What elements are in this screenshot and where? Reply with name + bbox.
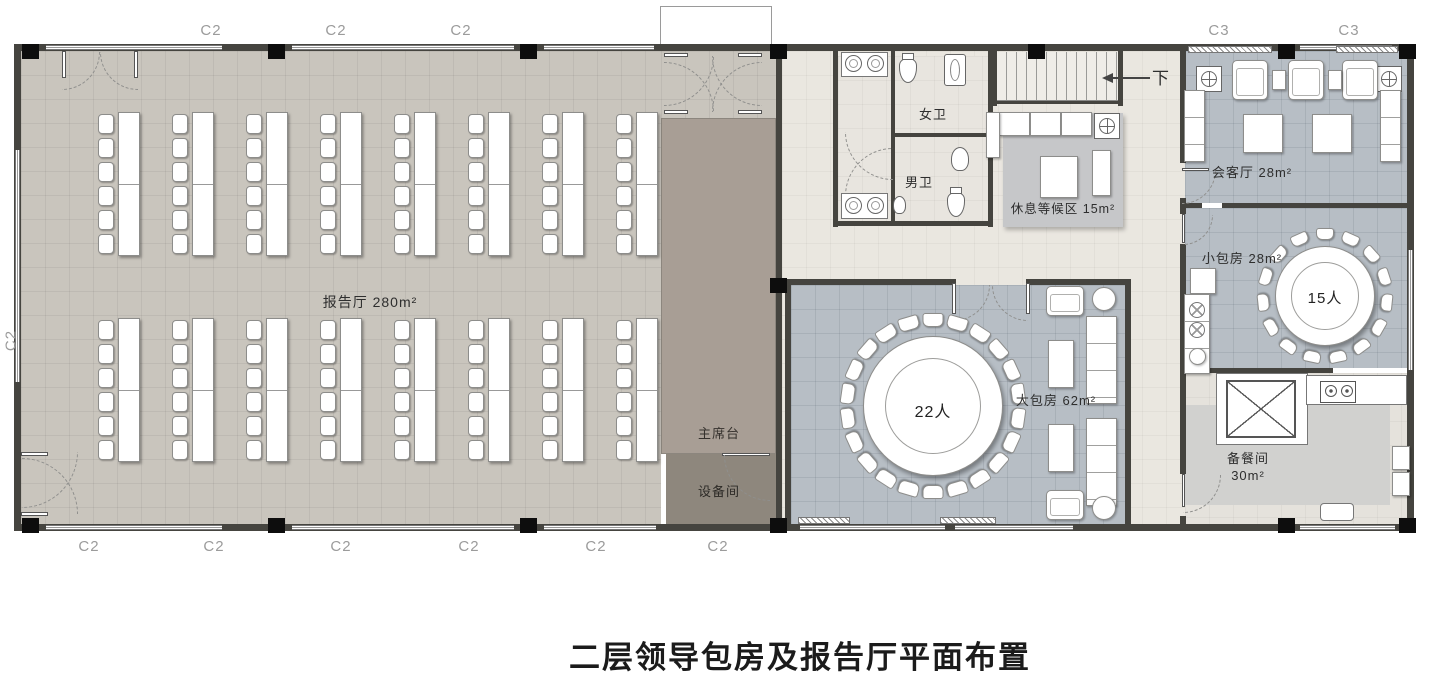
chair <box>542 114 558 134</box>
chair <box>468 344 484 364</box>
chair <box>923 485 944 499</box>
wall <box>785 279 956 285</box>
grid-label-c2-left: C2 <box>3 324 20 358</box>
chair <box>246 138 262 158</box>
womens-wc-label: 女卫 <box>915 104 951 123</box>
coffee-table <box>1048 424 1074 472</box>
armchair <box>1046 286 1084 316</box>
radiator-grille <box>940 517 996 524</box>
chair <box>468 114 484 134</box>
chair <box>394 344 410 364</box>
wall <box>785 279 791 525</box>
window <box>46 525 222 530</box>
chair <box>945 314 969 333</box>
chair <box>468 392 484 412</box>
chair <box>616 440 632 460</box>
chair <box>246 368 262 388</box>
waiting-sofa-table <box>1040 156 1078 198</box>
plant-icon <box>1376 66 1402 92</box>
chair <box>98 416 114 436</box>
burner-icon <box>1341 385 1353 397</box>
shelf <box>1392 472 1410 496</box>
lecture-table <box>562 318 584 462</box>
column <box>520 518 537 533</box>
chair <box>1375 266 1392 287</box>
chair <box>844 358 865 383</box>
chair <box>616 186 632 206</box>
chair <box>394 114 410 134</box>
chair <box>172 392 188 412</box>
chair <box>172 234 188 254</box>
chair <box>542 138 558 158</box>
sink-icon <box>845 197 862 214</box>
chair <box>320 344 336 364</box>
lecture-table <box>488 112 510 256</box>
chair <box>1262 316 1281 338</box>
sink-icon <box>867 197 884 214</box>
chair <box>246 210 262 230</box>
chair <box>1351 336 1373 356</box>
armchair <box>1046 490 1084 520</box>
column <box>22 518 39 533</box>
chair <box>542 186 558 206</box>
chair <box>394 210 410 230</box>
chair <box>246 320 262 340</box>
chair <box>542 162 558 182</box>
chair <box>1278 336 1300 356</box>
column <box>770 44 787 59</box>
waiting-sofa-table <box>1061 112 1092 136</box>
chair <box>320 162 336 182</box>
chair <box>320 392 336 412</box>
coffee-table <box>1048 340 1074 388</box>
chair <box>844 429 865 454</box>
grid-label-c2-bottom-4: C2 <box>452 538 486 555</box>
wall <box>1125 279 1131 525</box>
reception-room-label: 会客厅 28m² <box>1204 162 1300 181</box>
chair <box>98 186 114 206</box>
chair <box>98 138 114 158</box>
chair <box>246 186 262 206</box>
column <box>268 44 285 59</box>
stair-down-label: 下 <box>1152 64 1170 89</box>
chair <box>1000 358 1021 383</box>
lecture-table <box>488 318 510 462</box>
chair <box>542 392 558 412</box>
lecture-table <box>340 112 362 256</box>
wall <box>996 101 1122 104</box>
chair <box>986 450 1010 475</box>
pantry-sink <box>1320 503 1354 521</box>
chair <box>246 344 262 364</box>
chair <box>542 344 558 364</box>
window <box>292 45 514 50</box>
chair <box>172 416 188 436</box>
equipment-room-label: 设备间 <box>691 481 747 500</box>
lecture-hall-label: 报告厅 280m² <box>305 292 435 312</box>
chair <box>98 210 114 230</box>
waiting-sofa-table <box>986 112 1000 158</box>
wall <box>1222 203 1407 208</box>
chair <box>394 368 410 388</box>
staircase <box>996 52 1118 102</box>
chair <box>320 234 336 254</box>
coffee-table <box>1312 114 1352 153</box>
round-table-22-capacity: 22人 <box>833 398 1033 422</box>
sofa <box>1184 90 1205 162</box>
coffee-table <box>1272 70 1286 90</box>
stage-label: 主席台 <box>691 423 747 442</box>
chair <box>616 344 632 364</box>
large-private-room-label: 大包房 62m² <box>1006 390 1106 409</box>
lecture-table <box>340 318 362 462</box>
pantry-area-label: 30m² <box>1220 468 1276 483</box>
window <box>46 45 222 50</box>
chair <box>246 114 262 134</box>
waiting-sofa-table <box>1092 150 1111 196</box>
side-stool <box>1190 268 1216 294</box>
chair <box>616 114 632 134</box>
stair-arrow-head <box>1102 73 1113 83</box>
chair <box>98 344 114 364</box>
column <box>1278 44 1295 59</box>
radiator-grille <box>1336 46 1398 53</box>
chair <box>172 344 188 364</box>
plant-icon <box>1189 302 1205 318</box>
sink-icon <box>845 55 862 72</box>
chair <box>394 416 410 436</box>
chair <box>616 210 632 230</box>
round-table-15-capacity: 15人 <box>1250 287 1400 308</box>
lecture-table <box>192 112 214 256</box>
sofa <box>1086 418 1117 506</box>
chair <box>98 368 114 388</box>
chair <box>468 320 484 340</box>
chair <box>172 114 188 134</box>
column <box>268 518 285 533</box>
burner-icon <box>1325 385 1337 397</box>
chair <box>320 114 336 134</box>
coffee-table <box>1328 70 1342 90</box>
grid-label-c2-bottom-6: C2 <box>701 538 735 555</box>
chair <box>98 162 114 182</box>
lounge-chair <box>1189 348 1206 365</box>
chair <box>1289 230 1310 248</box>
chair <box>468 138 484 158</box>
waiting-sofa-table <box>1030 112 1061 136</box>
column <box>1399 518 1416 533</box>
lecture-table <box>636 318 658 462</box>
radiator-grille <box>1188 46 1272 53</box>
chair <box>616 320 632 340</box>
plant-icon <box>1196 66 1222 92</box>
chair <box>394 138 410 158</box>
window <box>1300 525 1395 530</box>
window <box>292 525 514 530</box>
chair <box>856 450 880 475</box>
chair <box>1369 316 1388 338</box>
chair <box>320 186 336 206</box>
chair <box>897 314 921 333</box>
chair <box>542 234 558 254</box>
stage-floor <box>661 118 776 454</box>
chair <box>468 416 484 436</box>
chair <box>967 322 992 345</box>
chair <box>172 368 188 388</box>
window <box>1408 250 1413 370</box>
grid-label-c2-bottom-1: C2 <box>72 538 106 555</box>
plant-icon <box>1094 113 1120 139</box>
wall <box>833 51 838 227</box>
elevator-icon <box>1226 380 1296 438</box>
lecture-table <box>414 112 436 256</box>
chair <box>394 392 410 412</box>
chair <box>616 416 632 436</box>
mens-wc-label: 男卫 <box>901 172 937 191</box>
chair <box>897 479 921 498</box>
wall <box>1180 516 1186 525</box>
chair <box>616 392 632 412</box>
chair <box>1328 349 1348 364</box>
pantry-label: 备餐间 <box>1216 448 1280 467</box>
chair <box>542 416 558 436</box>
plant-icon <box>1189 322 1205 338</box>
window <box>544 525 656 530</box>
sink-icon <box>867 55 884 72</box>
chair <box>542 368 558 388</box>
chair <box>874 467 899 490</box>
wall <box>833 221 993 226</box>
lecture-table <box>636 112 658 256</box>
grid-label-c2-bottom-2: C2 <box>197 538 231 555</box>
column <box>770 278 787 293</box>
chair <box>1340 230 1361 248</box>
lecture-table <box>118 318 140 462</box>
chair <box>542 320 558 340</box>
coffee-table <box>1243 114 1283 153</box>
column <box>1399 44 1416 59</box>
chair <box>246 440 262 460</box>
lecture-table <box>192 318 214 462</box>
armchair <box>1288 60 1324 100</box>
chair <box>923 313 944 327</box>
sofa <box>1380 90 1401 162</box>
chair <box>320 416 336 436</box>
chair <box>1302 349 1322 364</box>
chair <box>98 440 114 460</box>
grid-label-c2-top-3: C2 <box>444 22 478 39</box>
wall <box>895 133 988 137</box>
chair <box>542 210 558 230</box>
chair <box>1000 429 1021 454</box>
lecture-table <box>562 112 584 256</box>
chair <box>616 162 632 182</box>
side-table <box>1092 287 1116 311</box>
column <box>22 44 39 59</box>
column <box>770 518 787 533</box>
chair <box>1258 266 1275 287</box>
grid-label-c2-bottom-5: C2 <box>579 538 613 555</box>
chair <box>246 392 262 412</box>
chair <box>616 368 632 388</box>
chair <box>98 392 114 412</box>
chair <box>616 138 632 158</box>
grid-label-c2-top-2: C2 <box>319 22 353 39</box>
chair <box>468 186 484 206</box>
chair <box>394 186 410 206</box>
chair <box>1361 244 1382 265</box>
wall <box>1026 279 1130 285</box>
chair <box>468 368 484 388</box>
lecture-table <box>414 318 436 462</box>
chair <box>172 440 188 460</box>
chair <box>394 162 410 182</box>
waiting-sofa-table <box>999 112 1030 136</box>
chair <box>320 320 336 340</box>
chair <box>320 440 336 460</box>
chair <box>945 479 969 498</box>
side-table <box>1092 496 1116 520</box>
chair <box>468 440 484 460</box>
armchair <box>1232 60 1268 100</box>
radiator-grille <box>798 517 850 524</box>
window <box>955 525 1073 530</box>
column <box>1278 518 1295 533</box>
chair <box>616 234 632 254</box>
chair <box>98 320 114 340</box>
lecture-table <box>266 112 288 256</box>
grid-label-c3-top-1: C3 <box>1202 22 1236 39</box>
grid-label-c2-bottom-3: C2 <box>324 538 358 555</box>
window <box>800 525 945 530</box>
grid-label-c2-top-1: C2 <box>194 22 228 39</box>
chair <box>394 440 410 460</box>
chair <box>856 337 880 362</box>
chair <box>542 440 558 460</box>
chair <box>98 114 114 134</box>
drawing-title: 二层领导包房及报告厅平面布置 <box>480 632 1120 677</box>
wall <box>993 51 997 106</box>
shelf <box>1392 446 1410 470</box>
wall <box>1118 51 1123 106</box>
chair <box>394 320 410 340</box>
chair <box>468 234 484 254</box>
floor-plan: 下 22人 15人 报告厅 280m² 主席台 设备间 女卫 男卫 休息等候区 … <box>0 0 1431 684</box>
wall <box>14 524 1414 531</box>
waiting-area-label: 休息等候区 15m² <box>1006 198 1120 217</box>
chair <box>172 138 188 158</box>
chair <box>246 416 262 436</box>
chair <box>986 337 1010 362</box>
chair <box>468 210 484 230</box>
canopy-outline <box>660 6 772 46</box>
chair <box>967 467 992 490</box>
chair <box>172 162 188 182</box>
round-table-15: 15人 <box>1250 221 1400 371</box>
squat-toilet-icon <box>944 54 966 86</box>
chair <box>320 210 336 230</box>
chair <box>172 186 188 206</box>
window <box>544 45 654 50</box>
urinal-icon <box>893 196 906 214</box>
chair <box>172 210 188 230</box>
wall <box>1185 203 1202 208</box>
grid-label-c3-top-2: C3 <box>1332 22 1366 39</box>
chair <box>246 162 262 182</box>
chair <box>320 368 336 388</box>
urinal-icon <box>951 147 969 171</box>
chair <box>468 162 484 182</box>
round-table-22: 22人 <box>833 306 1033 506</box>
chair <box>394 234 410 254</box>
lecture-table <box>266 318 288 462</box>
chair <box>874 322 899 345</box>
small-private-room-label: 小包房 28m² <box>1194 248 1290 267</box>
chair <box>172 320 188 340</box>
column <box>1028 44 1045 59</box>
armchair <box>1342 60 1378 100</box>
chair <box>98 234 114 254</box>
chair <box>246 234 262 254</box>
lecture-table <box>118 112 140 256</box>
chair <box>1316 228 1334 240</box>
chair <box>320 138 336 158</box>
column <box>520 44 537 59</box>
